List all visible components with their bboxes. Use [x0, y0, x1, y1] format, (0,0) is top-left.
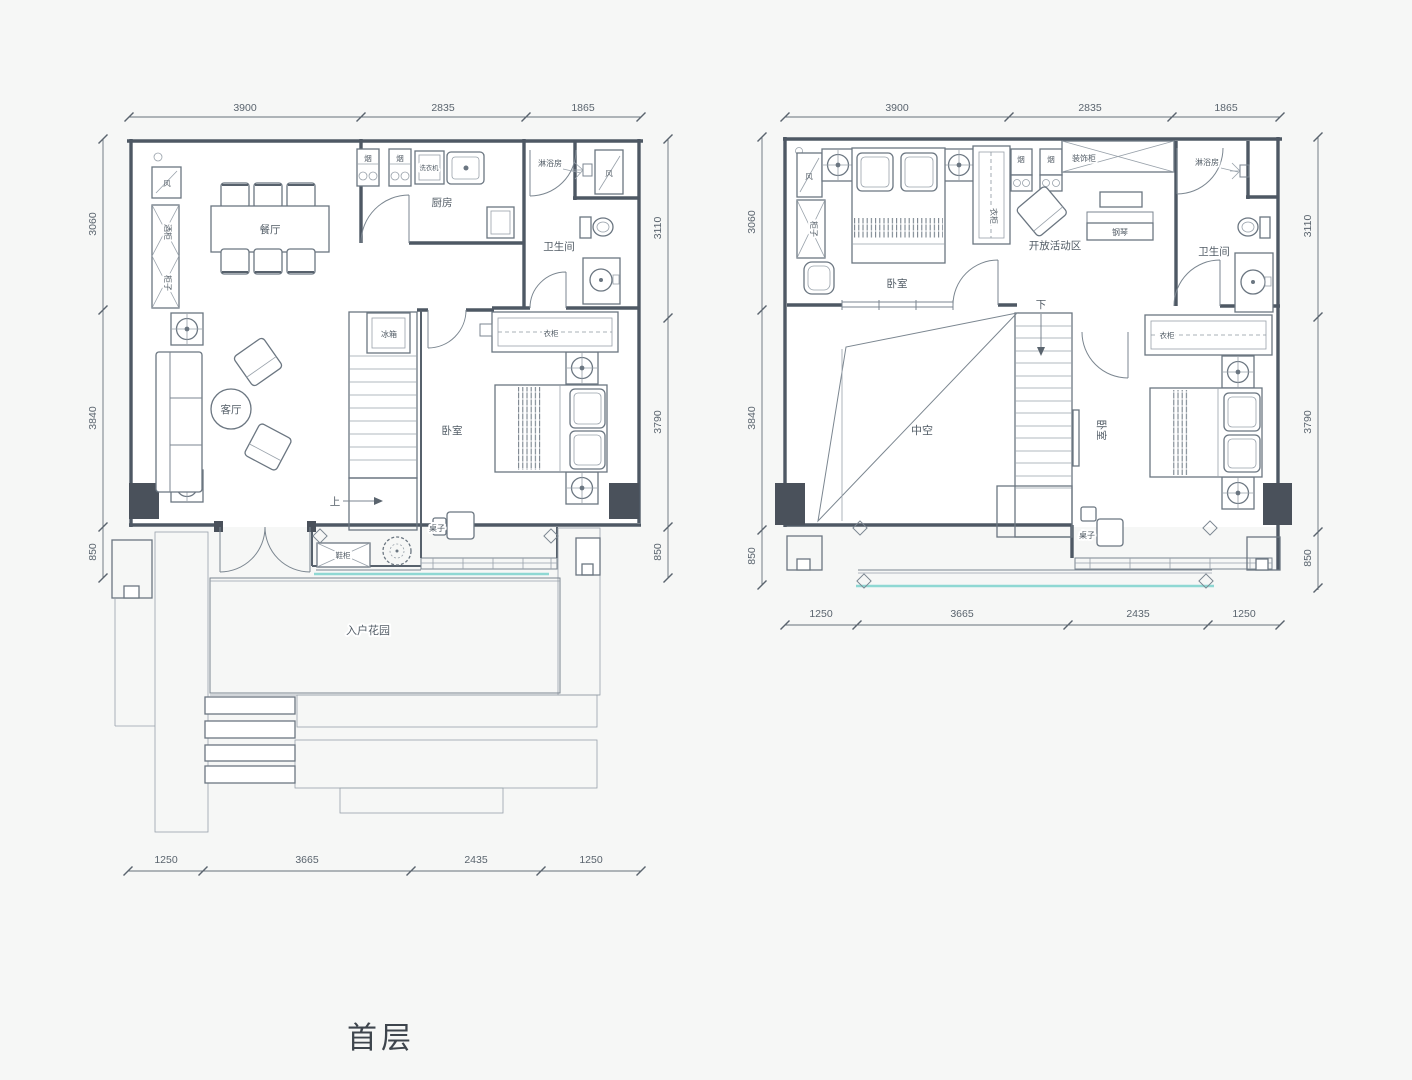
f1-wardrobe-label: 衣柜 [544, 328, 559, 338]
entry-porch: 鞋柜 [317, 537, 411, 567]
wardrobe-side: 衣柜 [973, 146, 1010, 244]
f1-dim-bottom-0: 1250 [154, 854, 178, 866]
f2-dim-left-2: 850 [746, 547, 758, 565]
f2-hood1-label: 烟 [1017, 155, 1025, 164]
f2-dim-bottom-3: 1250 [1232, 608, 1256, 620]
tea-table: 客厅 [211, 389, 251, 429]
f1-cabinet-label: 柜子 [163, 275, 173, 291]
f1-dim-top-2: 1865 [571, 102, 595, 114]
f1-dim-left-0: 3060 [87, 212, 99, 236]
floorplan-canvas: 3900 2835 1865 3060 3840 850 3110 3790 8… [0, 0, 1412, 1080]
deco-cabinet: 装饰柜 [1062, 141, 1174, 172]
floor1-plan: 3900 2835 1865 3060 3840 850 3110 3790 8… [87, 102, 673, 876]
f1-hood2-label: 烟 [396, 154, 404, 163]
f1-dim-bottom-2: 2435 [464, 854, 488, 866]
f1-dim-top-0: 3900 [233, 102, 257, 114]
f1-hood1-label: 烟 [364, 154, 372, 163]
f2-wardrobe-side-label: 衣柜 [989, 208, 999, 224]
f2-bath-label: 卫生间 [1198, 245, 1230, 258]
column [129, 483, 159, 519]
f2-deco-cabinet-label: 装饰柜 [1072, 153, 1096, 163]
f1-bedroom-label: 卧室 [442, 424, 463, 437]
floorplan-page: 3900 2835 1865 3060 3840 850 3110 3790 8… [0, 0, 1412, 1080]
f2-wardrobe-row-label: 衣柜 [1160, 330, 1176, 340]
f1-shoe-cabinet-label: 鞋柜 [336, 550, 351, 560]
column [1263, 483, 1292, 525]
f2-dim-right-0: 3110 [1302, 215, 1314, 238]
f1-dim-right-0: 3110 [652, 217, 664, 240]
f1-fridge-label: 冰箱 [381, 329, 397, 339]
f1-vent-left-label: 风 [163, 179, 171, 188]
cabinet: 柜子 [797, 200, 825, 258]
wardrobe-row: 衣柜 [480, 312, 618, 352]
f2-dim-right-1: 3790 [1302, 410, 1314, 434]
f1-washer-label: 洗衣机 [420, 163, 440, 172]
f2-bedroom-right-label: 卧室 [1095, 420, 1108, 441]
f1-garden-label: 入户花园 [346, 623, 390, 637]
f2-activity-label: 开放活动区 [1029, 239, 1082, 252]
floor2-plan: 3900 2835 1865 3060 3840 850 3110 3790 8… [746, 102, 1323, 630]
f1-bath-label: 卫生间 [543, 240, 575, 253]
f2-dim-right-2: 850 [1302, 549, 1314, 567]
f1-living-label: 客厅 [221, 403, 242, 416]
f2-dim-left-1: 3840 [746, 406, 758, 430]
f2-dim-top-0: 3900 [885, 102, 909, 114]
f2-dim-bottom-0: 1250 [809, 608, 833, 620]
page-title: 首层 [347, 1022, 415, 1055]
f1-wine-cabinet-label: 酒柜 [163, 224, 173, 240]
f2-piano-label: 钢琴 [1112, 227, 1128, 237]
f1-dining-label: 餐厅 [260, 223, 281, 236]
f1-dim-top-1: 2835 [431, 102, 455, 114]
f1-dim-right-1: 3790 [652, 410, 664, 434]
entrance-double-door [220, 527, 310, 572]
f2-dim-left-0: 3060 [746, 210, 758, 234]
wine-cabinet: 酒柜 柜子 [152, 205, 179, 308]
f2-cabinet-label: 柜子 [809, 221, 819, 237]
f1-dim-left-2: 850 [87, 543, 99, 561]
f2-hood2-label: 烟 [1047, 155, 1055, 164]
f1-table-label: 桌子 [429, 523, 445, 533]
sofa [156, 352, 202, 492]
f1-dim-left-1: 3840 [87, 406, 99, 430]
f2-vent-label: 风 [805, 172, 813, 181]
f1-dim-bottom-1: 3665 [295, 854, 319, 866]
vent-shaft: 风 [152, 167, 181, 198]
f2-shower-label: 淋浴房 [1195, 157, 1219, 167]
f2-bedroom-top-label: 卧室 [887, 277, 908, 290]
f1-dim-bottom-3: 1250 [579, 854, 603, 866]
f2-down-label: 下 [1036, 299, 1047, 311]
column [775, 483, 805, 525]
f2-void-label: 中空 [911, 423, 933, 437]
f2-dim-top-2: 1865 [1214, 102, 1238, 114]
f1-shower-label: 淋浴房 [538, 158, 562, 168]
f2-dim-bottom-2: 2435 [1126, 608, 1150, 620]
balcony [787, 521, 1280, 588]
f1-up-label: 上 [330, 496, 341, 508]
column [609, 483, 639, 519]
f1-vent-right-label: 风 [605, 169, 613, 178]
vent-shaft: 风 [797, 153, 822, 197]
dining-set: 餐厅 [211, 183, 329, 274]
f1-dim-right-2: 850 [652, 543, 664, 561]
f2-dim-bottom-1: 3665 [950, 608, 974, 620]
f2-table-label: 桌子 [1079, 530, 1095, 540]
f1-kitchen-label: 厨房 [432, 196, 453, 209]
f2-dim-top-1: 2835 [1078, 102, 1102, 114]
wardrobe-row: 衣柜 [1145, 315, 1272, 355]
